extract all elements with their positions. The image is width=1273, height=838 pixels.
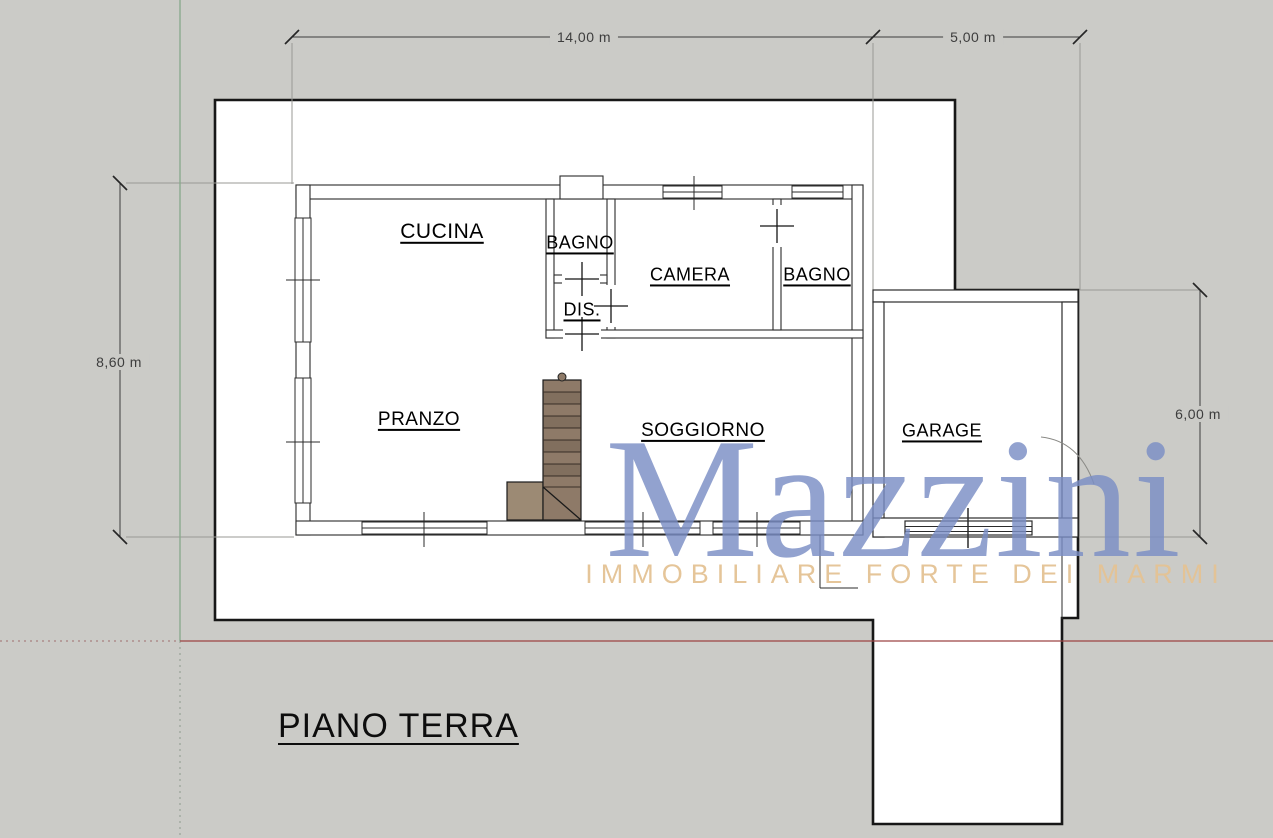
watermark-tagline: IMMOBILIARE FORTE DEI MARMI [556, 560, 1256, 590]
dimension-label-left: 8,60 m [89, 354, 149, 370]
floor-plan-canvas: CUCINA BAGNO DIS. CAMERA BAGNO PRANZO SO… [0, 0, 1273, 838]
room-label-pranzo: PRANZO [378, 409, 460, 431]
room-label-camera: CAMERA [650, 264, 730, 285]
dimension-label-top-main: 14,00 m [550, 29, 618, 45]
stairs-newel-post [558, 373, 566, 381]
room-label-bagno-right: BAGNO [783, 264, 851, 285]
room-label-cucina: CUCINA [400, 220, 484, 244]
room-label-bagno-top: BAGNO [546, 232, 614, 253]
page-title: PIANO TERRA [278, 707, 519, 746]
stairs-landing [507, 482, 543, 520]
room-label-dis: DIS. [563, 299, 600, 320]
entry-door-threshold [560, 176, 603, 199]
dimension-label-top-right: 5,00 m [943, 29, 1003, 45]
